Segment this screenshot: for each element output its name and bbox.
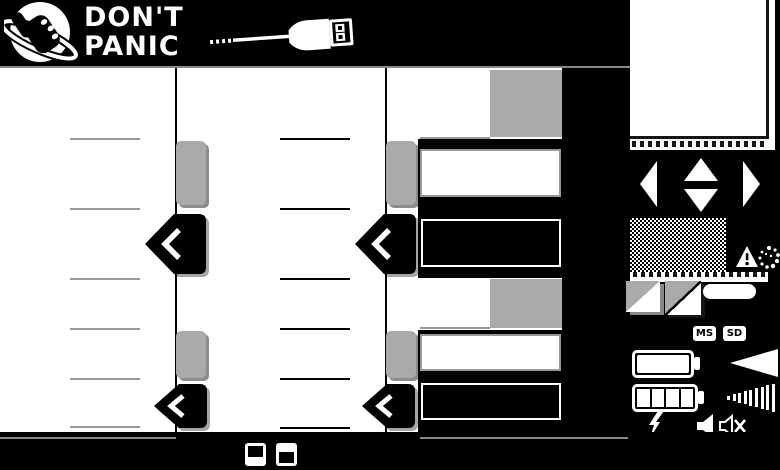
battery-level-icon	[632, 384, 698, 412]
usb-cable-icon	[208, 16, 358, 56]
ruler-line	[280, 328, 350, 330]
dpad-up-icon[interactable]	[684, 158, 718, 181]
gray-value-box	[490, 279, 562, 328]
arrow-left-button[interactable]	[353, 211, 419, 277]
divider-line	[420, 327, 490, 329]
device-screen: DON'T PANIC	[0, 0, 780, 470]
ruler-line	[70, 328, 140, 330]
display-bottom-half-fill	[279, 452, 294, 463]
ruler-line	[280, 208, 350, 210]
photo-thumbnail-gray-icon	[626, 281, 660, 312]
bottom-bar-line	[0, 437, 176, 439]
ruler-line	[280, 378, 350, 380]
display-top-half-fill	[248, 446, 263, 457]
brand-title: DON'T PANIC	[84, 3, 184, 61]
battery-segment	[652, 389, 665, 407]
sheet-spine	[766, 0, 769, 139]
bottom-bar-line	[420, 437, 628, 439]
ruler-line	[280, 278, 350, 280]
status-pill	[703, 284, 756, 299]
ruler-line	[70, 208, 140, 210]
thumb-globe-logo-icon	[4, 0, 78, 66]
slider-handle[interactable]	[386, 331, 416, 378]
ruler-line	[280, 138, 350, 140]
black-value-field	[421, 219, 561, 267]
ruler-line	[70, 278, 140, 280]
ruler-line	[70, 426, 140, 428]
battery-full-icon	[632, 350, 694, 378]
white-value-field	[420, 334, 561, 371]
ruler-line	[70, 138, 140, 140]
battery-terminal	[698, 391, 704, 404]
battery-segment	[637, 389, 650, 407]
filmstrip-perforation	[633, 272, 765, 277]
memory-stick-badge: MS	[693, 326, 716, 341]
sheet-perforation	[632, 141, 768, 147]
brand-line1: DON'T	[84, 3, 184, 32]
gray-value-box	[490, 70, 562, 137]
ruler-line	[70, 378, 140, 380]
arrow-left-button-small[interactable]	[360, 382, 417, 430]
dpad-left-icon[interactable]	[640, 161, 657, 207]
display-top-half-icon[interactable]	[245, 443, 266, 466]
dust-particles-icon	[757, 244, 780, 272]
battery-segment	[681, 389, 694, 407]
brand-line2: PANIC	[84, 32, 184, 61]
slider-handle[interactable]	[176, 331, 206, 378]
volume-bars-icon	[727, 383, 780, 412]
arrow-left-button-small[interactable]	[152, 382, 209, 430]
sheet-bottom-line	[630, 136, 767, 139]
sd-card-badge: SD	[723, 326, 746, 341]
photo-thumbnail-diagonal-icon	[665, 281, 701, 315]
warning-triangle-icon	[735, 245, 759, 269]
battery-terminal	[694, 357, 700, 370]
volume-wedge-icon	[730, 349, 778, 377]
dither-preview-box	[630, 218, 726, 272]
divider-line	[420, 137, 490, 139]
battery-segment	[666, 389, 679, 407]
arrow-left-button[interactable]	[143, 211, 209, 277]
dpad-right-icon[interactable]	[743, 161, 760, 207]
preview-sheet	[630, 0, 775, 150]
dpad-down-icon[interactable]	[684, 189, 718, 212]
top-bar-underline	[0, 66, 630, 68]
slider-handle[interactable]	[176, 141, 206, 205]
display-bottom-half-icon[interactable]	[276, 443, 297, 466]
white-value-field	[420, 149, 561, 197]
slider-handle[interactable]	[386, 141, 416, 205]
battery-full-fill	[637, 355, 689, 373]
ruler-line	[280, 427, 350, 429]
black-value-field	[421, 383, 561, 420]
